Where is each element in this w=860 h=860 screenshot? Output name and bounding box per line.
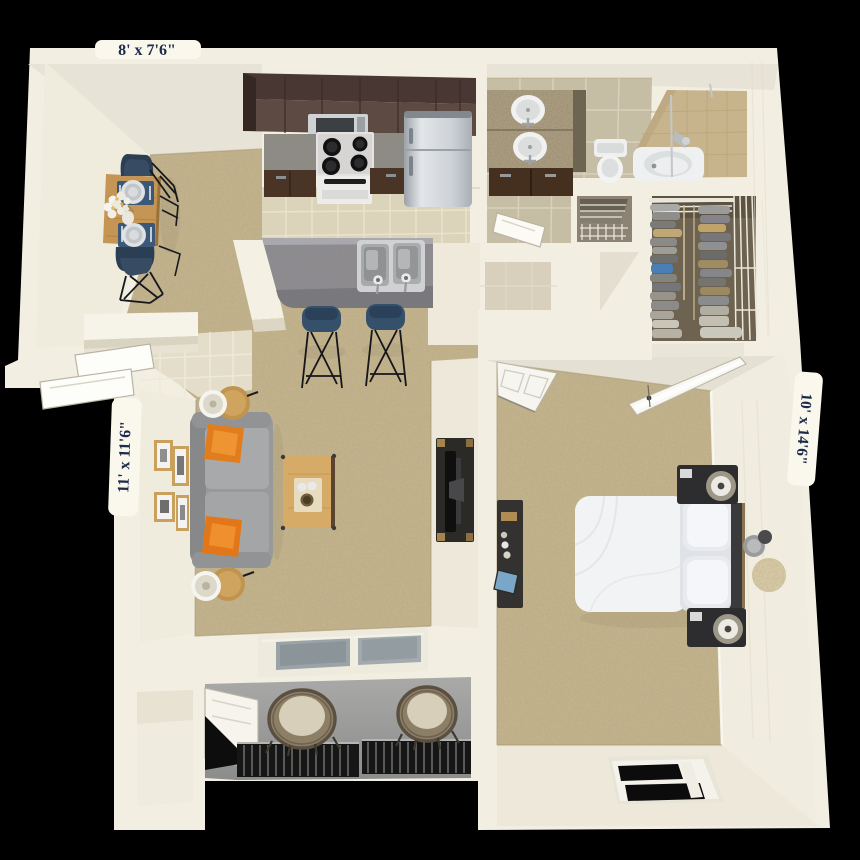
svg-text:11' x 11'6": 11' x 11'6" [115,421,135,494]
svg-text:8' x 7'6": 8' x 7'6" [118,42,176,59]
